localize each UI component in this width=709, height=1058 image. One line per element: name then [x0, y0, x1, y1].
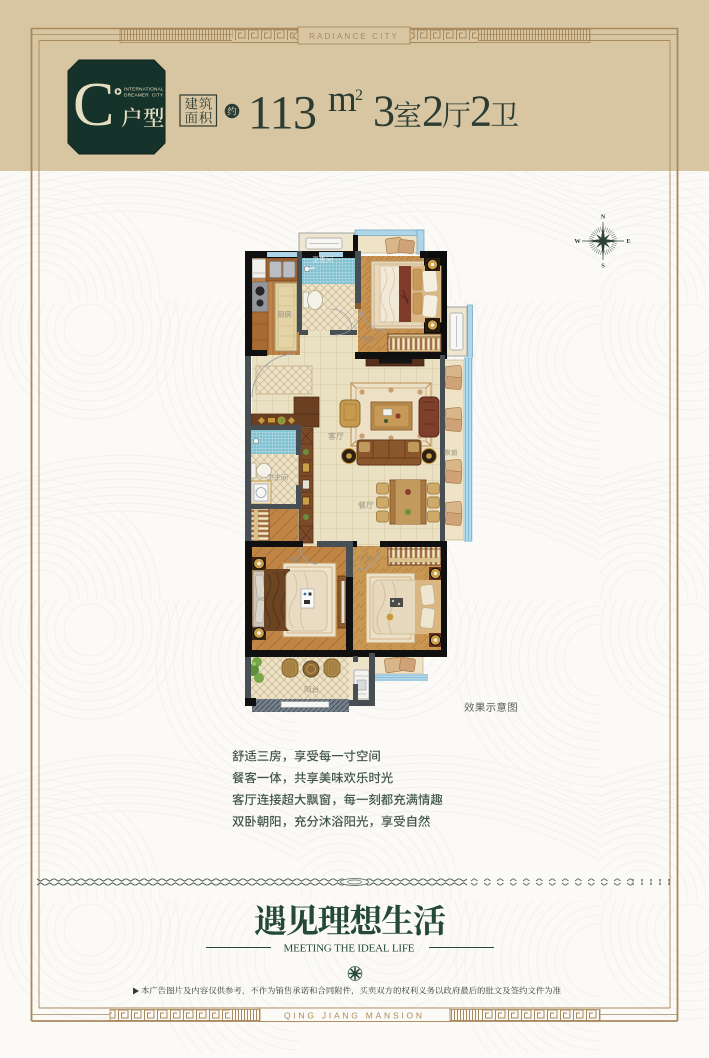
svg-text:2: 2 [470, 87, 492, 136]
svg-text:m: m [328, 79, 357, 120]
svg-text:W: W [574, 238, 581, 245]
svg-text:S: S [601, 263, 605, 270]
svg-text:3: 3 [373, 87, 395, 136]
svg-text:2: 2 [422, 87, 444, 136]
svg-text:113: 113 [248, 87, 317, 140]
svg-text:INTERNATIONAL: INTERNATIONAL [124, 87, 164, 92]
svg-text:QING JIANG MANSION: QING JIANG MANSION [284, 1011, 424, 1021]
svg-text:N: N [601, 214, 606, 221]
svg-text:2: 2 [355, 87, 363, 104]
svg-text:MEETING THE IDEAL LIFE: MEETING THE IDEAL LIFE [284, 943, 417, 955]
svg-text:C: C [73, 71, 114, 139]
svg-text:E: E [626, 238, 630, 245]
svg-text:RADIANCE CITY: RADIANCE CITY [309, 32, 399, 41]
svg-text:DREAMER CITY: DREAMER CITY [124, 93, 164, 98]
